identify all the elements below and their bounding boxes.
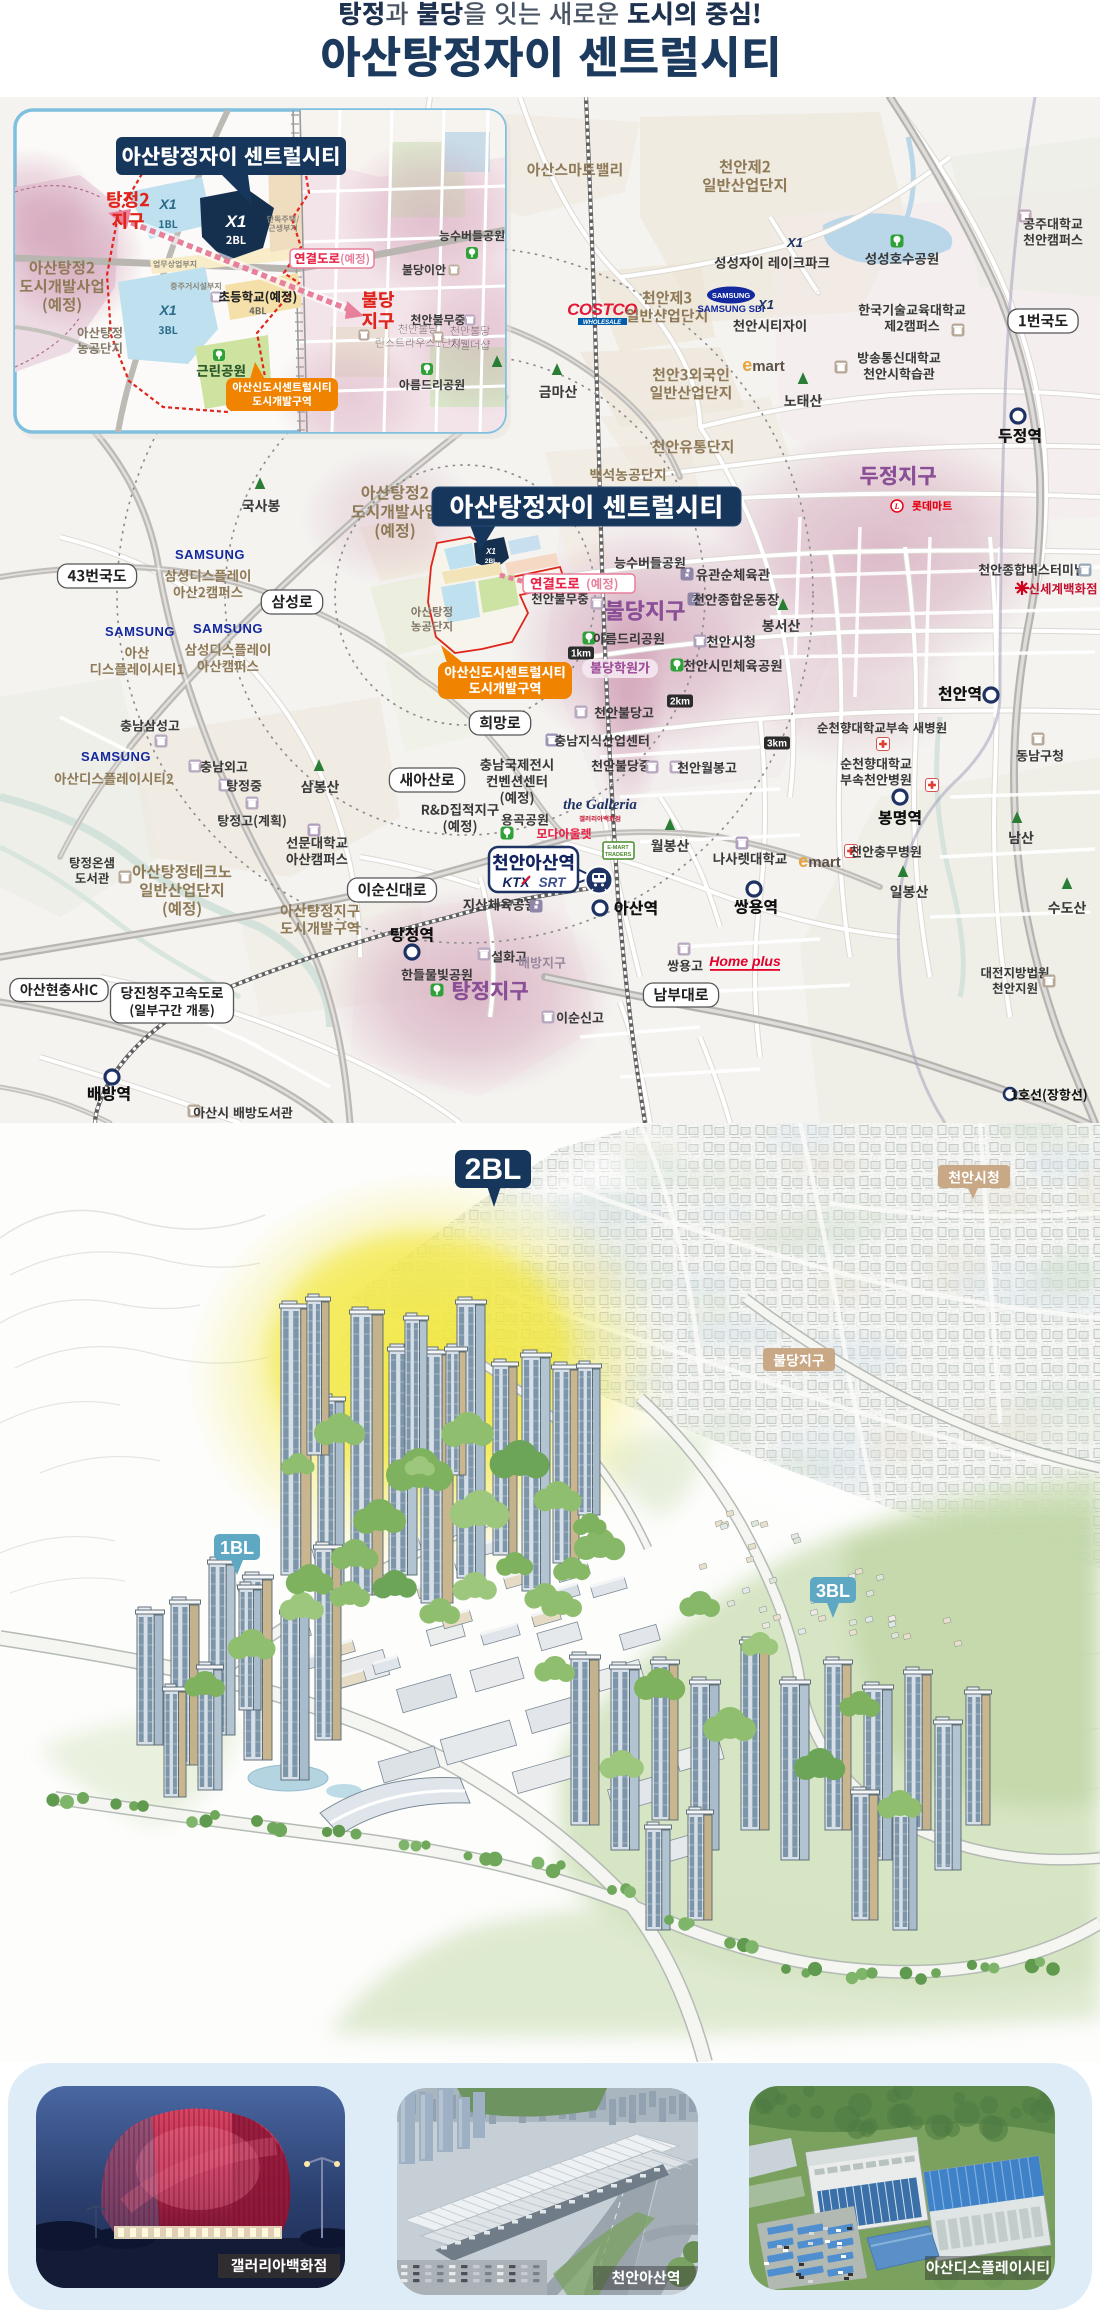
svg-text:3km: 3km [767, 739, 787, 750]
svg-text:e: e [742, 355, 752, 375]
svg-text:1km: 1km [571, 649, 591, 660]
svg-text:mart: mart [752, 358, 785, 375]
svg-text:SAMSUNG: SAMSUNG [193, 621, 263, 636]
svg-text:e: e [798, 851, 808, 871]
svg-text:SAMSUNG SDI: SAMSUNG SDI [697, 304, 764, 315]
svg-text:X1: X1 [485, 547, 496, 556]
svg-text:the Galleria: the Galleria [563, 797, 637, 813]
svg-text:E-MART: E-MART [607, 845, 629, 851]
svg-text:KTX: KTX [503, 875, 531, 890]
svg-text:1BL: 1BL [220, 1538, 254, 1558]
svg-text:WHOLESALE: WHOLESALE [583, 320, 622, 326]
svg-text:3BL: 3BL [816, 1581, 850, 1601]
svg-text:2BL: 2BL [485, 558, 497, 565]
svg-text:2km: 2km [670, 697, 690, 708]
svg-text:TRADERS: TRADERS [605, 852, 632, 858]
svg-text:X1: X1 [225, 212, 247, 231]
svg-text:L: L [894, 502, 900, 511]
svg-text:mart: mart [808, 854, 841, 871]
svg-text:SRT: SRT [539, 875, 568, 890]
svg-text:X1: X1 [158, 196, 176, 212]
svg-text:X1: X1 [786, 235, 803, 250]
svg-text:SAMSUNG: SAMSUNG [105, 624, 175, 639]
svg-text:Home plus: Home plus [709, 953, 781, 969]
svg-text:2BL: 2BL [465, 1153, 522, 1186]
svg-text:X1: X1 [158, 302, 176, 318]
svg-text:SAMSUNG: SAMSUNG [712, 291, 751, 300]
svg-text:COSTCO: COSTCO [567, 300, 637, 319]
svg-text:X1: X1 [757, 297, 774, 312]
svg-text:SAMSUNG: SAMSUNG [81, 749, 151, 764]
svg-text:SAMSUNG: SAMSUNG [175, 547, 245, 562]
